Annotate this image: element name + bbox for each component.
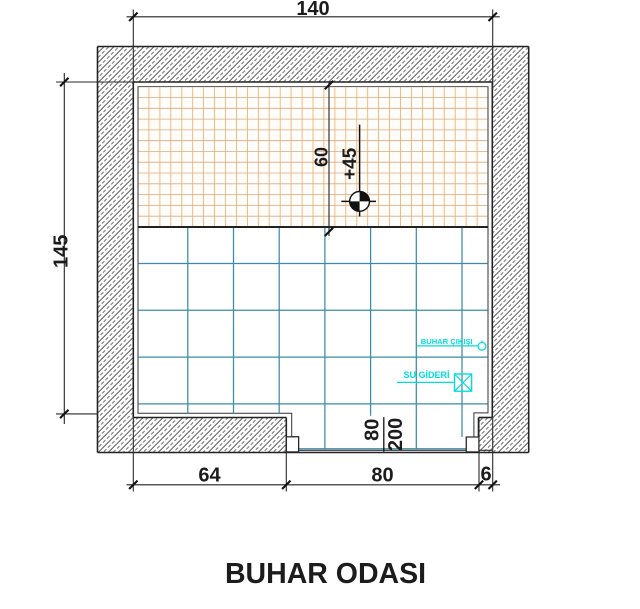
svg-text:60: 60 bbox=[311, 147, 331, 167]
svg-text:+45: +45 bbox=[340, 147, 361, 180]
svg-text:SU GİDERİ: SU GİDERİ bbox=[403, 370, 449, 380]
svg-text:140: 140 bbox=[296, 0, 329, 20]
svg-text:80: 80 bbox=[362, 419, 384, 441]
svg-text:6: 6 bbox=[480, 464, 491, 486]
svg-text:80: 80 bbox=[371, 465, 393, 487]
svg-text:BUHAR ODASI: BUHAR ODASI bbox=[225, 558, 426, 590]
svg-text:145: 145 bbox=[50, 235, 72, 268]
svg-text:200: 200 bbox=[385, 418, 407, 451]
svg-text:64: 64 bbox=[198, 465, 221, 487]
svg-text:BUHAR ÇIKIŞI: BUHAR ÇIKIŞI bbox=[421, 337, 473, 346]
